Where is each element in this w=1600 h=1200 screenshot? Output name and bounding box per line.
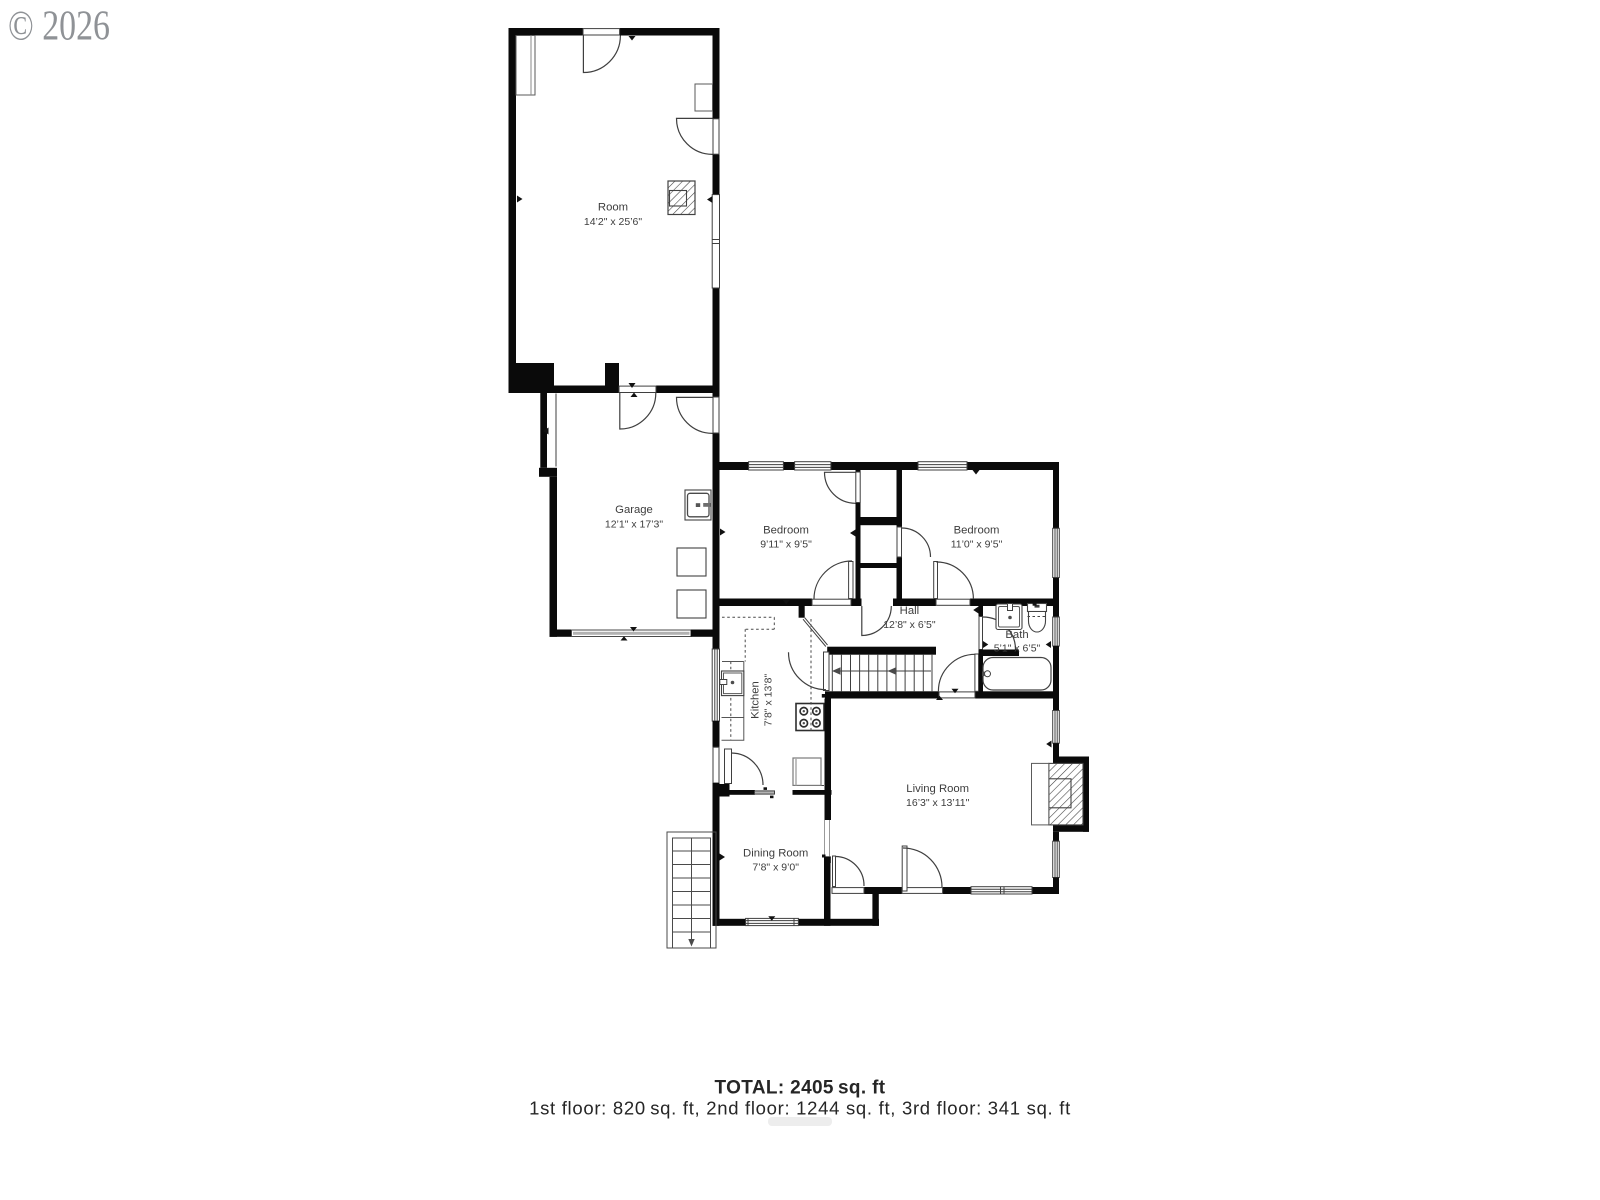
svg-text:Kitchen: Kitchen [750,681,762,719]
svg-text:16’3" x 13’11": 16’3" x 13’11" [906,797,970,809]
svg-text:7’8" x 9’0": 7’8" x 9’0" [752,862,799,874]
svg-text:Bedroom: Bedroom [763,525,809,537]
svg-text:© 2026: © 2026 [8,4,110,50]
svg-text:14’2" x 25’6": 14’2" x 25’6" [584,216,643,228]
svg-text:12’8" x 6’5": 12’8" x 6’5" [883,619,936,631]
svg-text:12’1" x 17’3": 12’1" x 17’3" [605,519,664,531]
svg-text:9’11" x 9’5": 9’11" x 9’5" [760,539,812,551]
svg-text:Living Room: Living Room [906,783,969,795]
svg-text:5’1" x 6’5": 5’1" x 6’5" [994,643,1041,655]
svg-text:Dining Room: Dining Room [743,848,808,860]
svg-text:Hall: Hall [900,605,919,617]
svg-text:Garage: Garage [615,504,653,516]
svg-text:Bath: Bath [1005,629,1028,641]
svg-text:Room: Room [598,202,628,214]
svg-text:7’8" x 13’8": 7’8" x 13’8" [763,674,775,727]
svg-text:11’0" x 9’5": 11’0" x 9’5" [951,539,1003,551]
svg-text:1st floor: 820 sq. ft, 2nd flo: 1st floor: 820 sq. ft, 2nd floor: 1244 s… [529,1098,1071,1119]
svg-text:Bedroom: Bedroom [954,525,1000,537]
svg-text:TOTAL: 2405 sq. ft: TOTAL: 2405 sq. ft [715,1078,886,1099]
